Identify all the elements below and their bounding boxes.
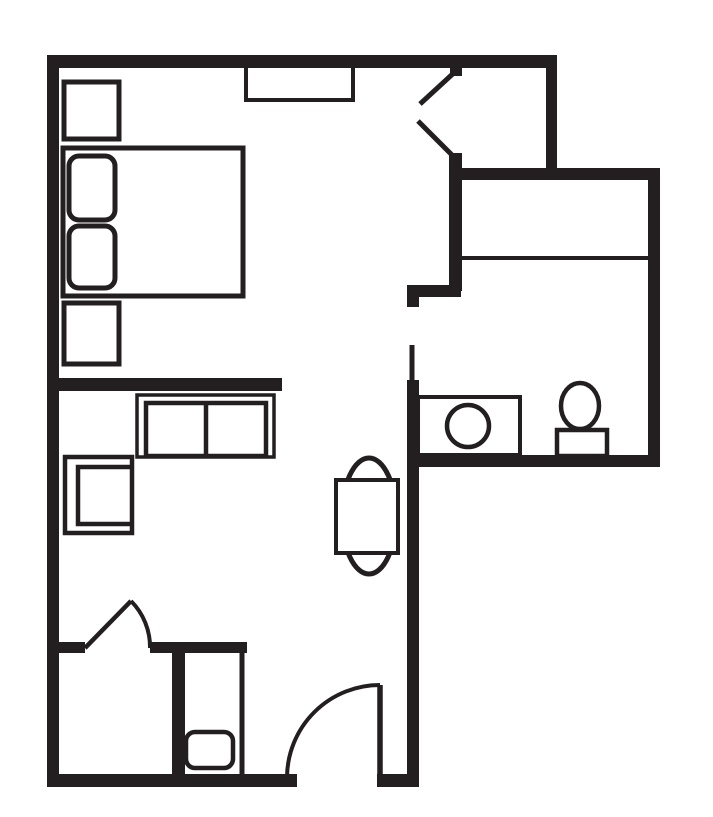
wall-top [47,55,557,68]
nightstand-bottom [64,303,119,364]
wall-closet-top [150,642,247,653]
sink-basin [447,405,489,447]
toilet-tank [557,430,607,456]
wall-closet-left [172,642,185,774]
entry-diagonal-lower [418,121,456,159]
floor-plan-svg [0,0,713,817]
wall-left [47,55,59,787]
interior-door-leaf [85,601,131,648]
entry-door-arc [287,685,380,777]
pillow-bottom [69,226,115,288]
wall-upper-horizontal [450,168,660,180]
wall-vestibule-divider [546,67,557,168]
floor-plan [0,0,713,817]
wall-bottom-left [47,774,297,787]
closet-safe [186,732,233,768]
pillow-top [69,156,115,220]
wall-room-divider [52,378,282,391]
entry-diagonal-upper [420,70,457,104]
interior-door-arc [131,601,150,648]
nightstand-top [64,82,119,139]
wall-bath-jog-stub [407,294,419,307]
table-top [336,480,398,553]
wall-door-stub-left [52,642,85,653]
toilet-bowl [561,383,599,429]
wall-right [648,168,660,467]
